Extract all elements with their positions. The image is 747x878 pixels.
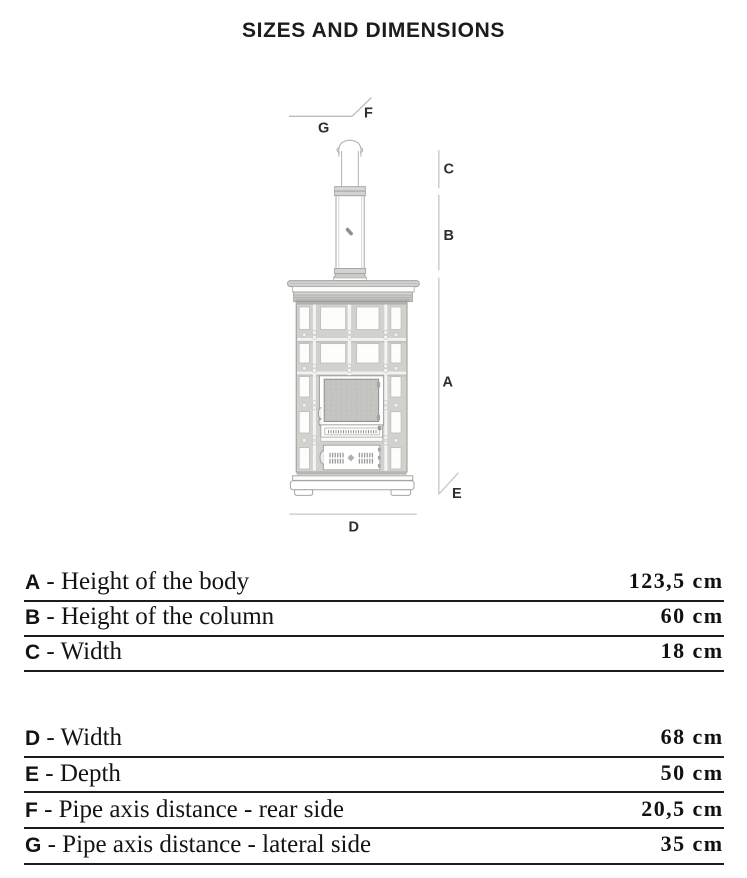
svg-text:A: A bbox=[443, 375, 454, 391]
svg-text:F: F bbox=[364, 106, 373, 122]
svg-text:E: E bbox=[452, 486, 462, 502]
svg-text:C: C bbox=[444, 162, 455, 178]
svg-text:G: G bbox=[318, 121, 329, 137]
svg-text:D: D bbox=[349, 520, 359, 536]
svg-text:B: B bbox=[444, 228, 454, 244]
